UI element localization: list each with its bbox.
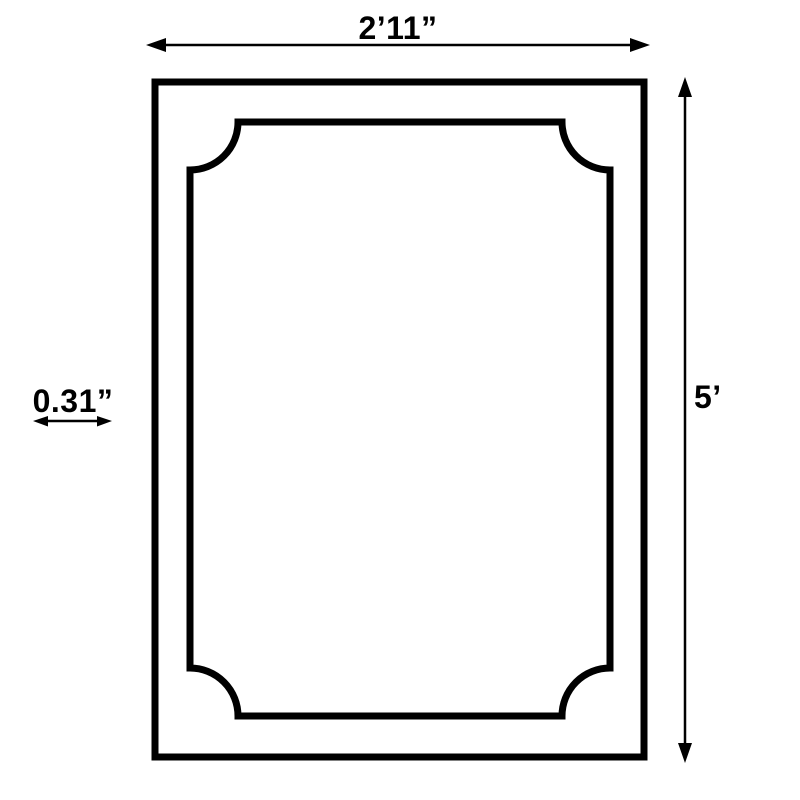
width-dimension-label: 2’11” [358, 10, 437, 46]
dimension-diagram: 2’11” 5’ 0.31” [0, 0, 800, 800]
thickness-dimension: 0.31” [33, 383, 114, 427]
arrow-right-icon [630, 38, 650, 52]
arrow-down-icon [678, 743, 692, 763]
height-dimension: 5’ [678, 77, 722, 763]
height-dimension-label: 5’ [694, 379, 722, 415]
thickness-dimension-label: 0.31” [33, 383, 114, 419]
width-dimension: 2’11” [146, 10, 650, 52]
inner-frame-outline [190, 122, 610, 716]
arrow-up-icon [678, 77, 692, 97]
arrow-left-icon [146, 38, 166, 52]
outer-frame-outline [155, 82, 644, 757]
frame-dimension-drawing: 2’11” 5’ 0.31” [0, 0, 800, 800]
